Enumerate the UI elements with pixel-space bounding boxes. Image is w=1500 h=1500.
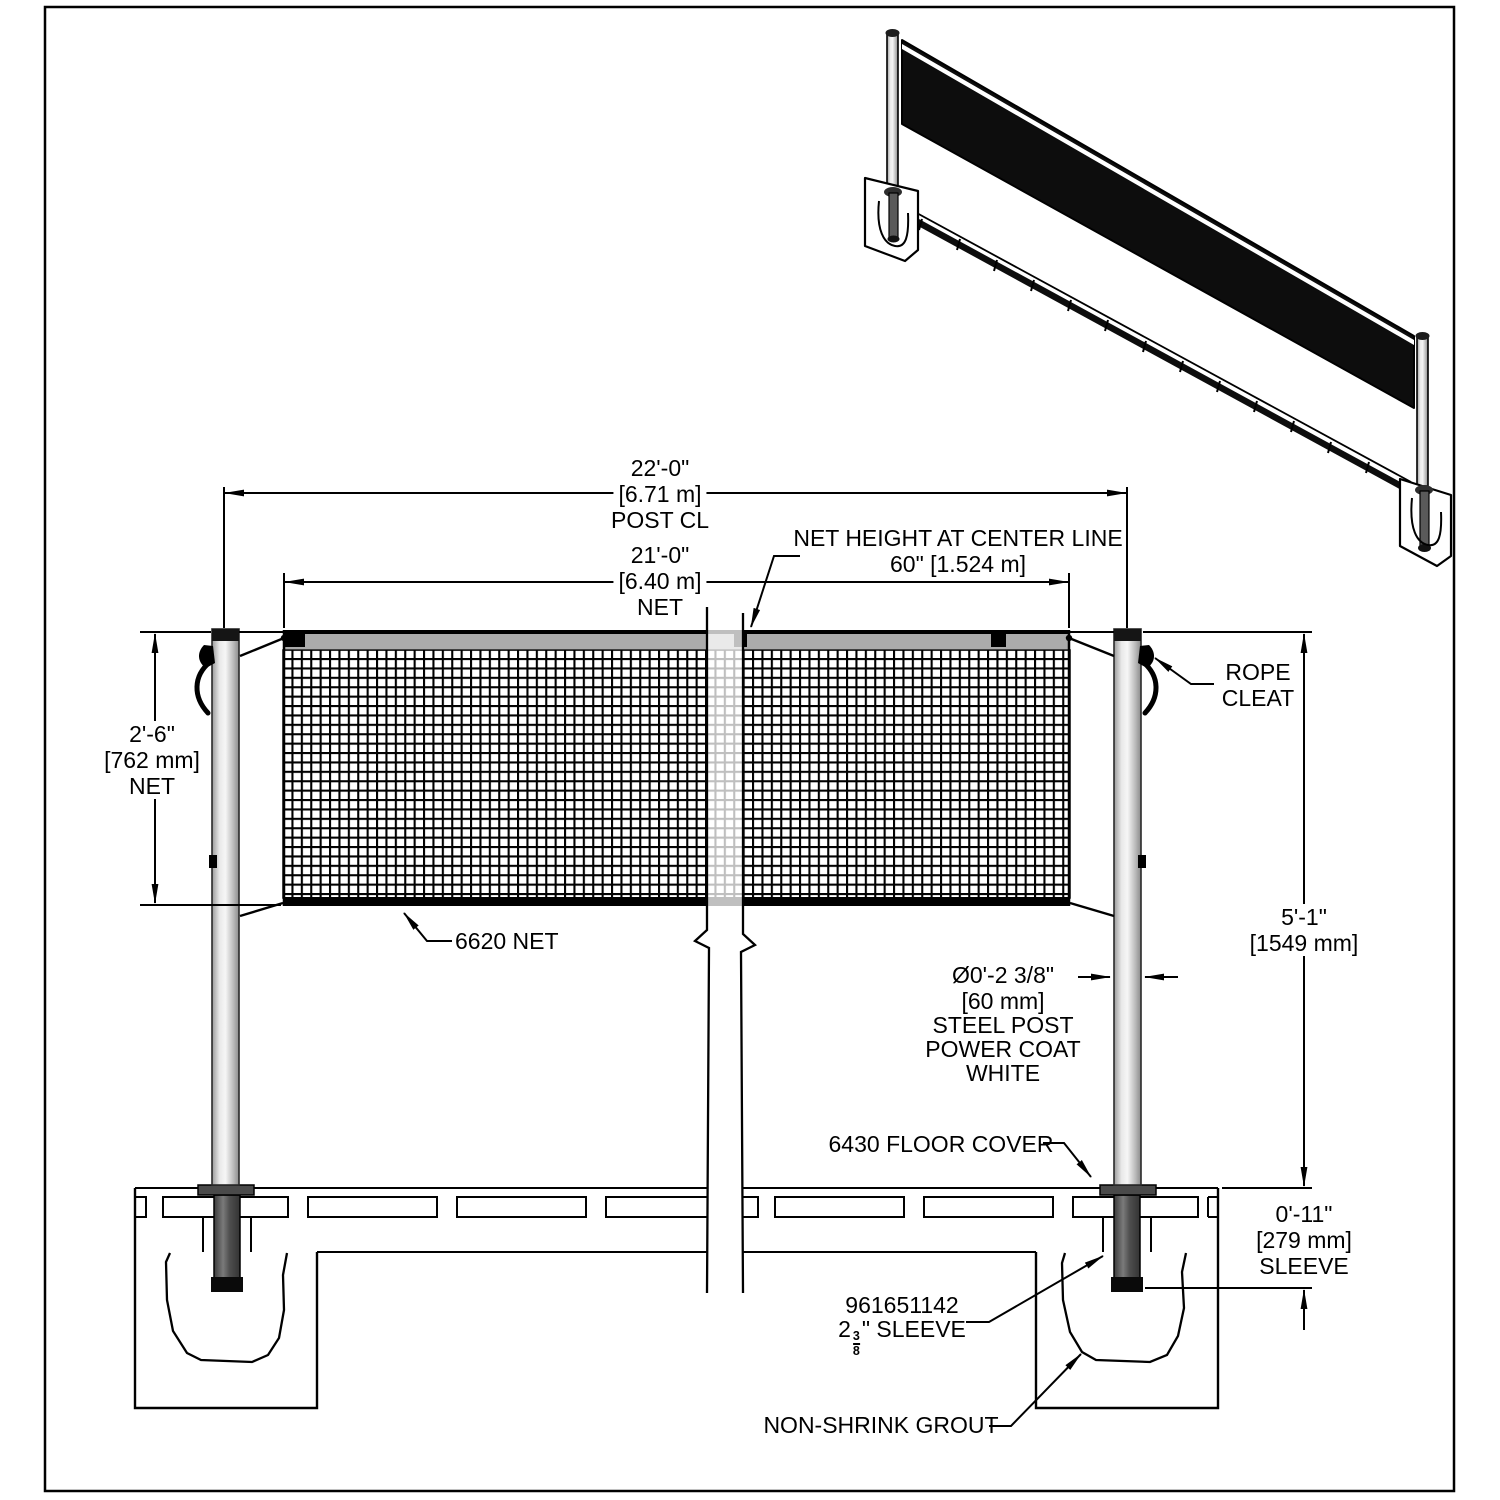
right-post xyxy=(1114,629,1141,1185)
dim-net-width-metric: [6.40 m] xyxy=(613,568,706,594)
net-bottom-edge xyxy=(283,897,1070,906)
fraction-numerator: 3 xyxy=(853,1330,860,1343)
dim-sleeve-metric: [279 mm] xyxy=(1251,1227,1357,1253)
net-tie-patch-left xyxy=(285,631,305,647)
net-height-callout-line2: 60" [1.524 m] xyxy=(890,551,1026,577)
dim-post-cl-imperial: 22'-0" xyxy=(631,455,690,481)
iso-right-post-stub xyxy=(1420,491,1429,547)
post-spec-line3: WHITE xyxy=(966,1060,1040,1086)
dim-post-cl-metric: [6.71 m] xyxy=(613,481,706,507)
dim-sleeve-imperial: 0'-11" xyxy=(1271,1201,1338,1227)
left-sleeve xyxy=(214,1195,240,1278)
post-dia-metric: [60 mm] xyxy=(961,988,1044,1014)
dim-net-depth-label: NET xyxy=(124,773,180,799)
net-mesh xyxy=(283,650,1070,898)
post-spec-line1: STEEL POST xyxy=(932,1012,1073,1038)
dim-sleeve-label: SLEEVE xyxy=(1254,1253,1354,1279)
left-tie-dot xyxy=(281,635,287,641)
leader-net-height xyxy=(751,556,800,627)
dim-net-depth-metric: [762 mm] xyxy=(99,747,205,773)
isometric-view xyxy=(865,29,1451,566)
rope-cleat-label-line1: ROPE xyxy=(1225,659,1290,685)
post-spec-line2: POWER COAT xyxy=(925,1036,1080,1062)
floor-section xyxy=(135,1188,1218,1408)
floor-cover-label: 6430 FLOOR COVER xyxy=(829,1131,1054,1157)
dim-post-height-imperial: 5'-1" xyxy=(1276,904,1332,930)
grout-label: NON-SHRINK GROUT xyxy=(763,1412,998,1438)
fraction-denominator: 8 xyxy=(853,1345,860,1358)
leader-net-part xyxy=(404,913,452,941)
net-part-label: 6620 NET xyxy=(455,928,559,954)
right-tie-dot xyxy=(1066,635,1072,641)
net-headband-tape xyxy=(283,634,1070,649)
net-height-callout-line1: NET HEIGHT AT CENTER LINE xyxy=(793,525,1122,551)
left-rope xyxy=(197,662,210,713)
sleeve-size-fraction: 38 xyxy=(853,1330,860,1358)
iso-left-post-tip xyxy=(888,236,900,243)
right-extension-lines xyxy=(1143,632,1312,1288)
dim-post-height-metric: [1549 mm] xyxy=(1245,930,1364,956)
dim-net-width-label: NET xyxy=(637,594,683,620)
iso-left-post-stub xyxy=(889,193,898,238)
left-post xyxy=(212,629,239,1185)
net-front-view xyxy=(239,630,1114,916)
left-sleeve-cap xyxy=(211,1277,243,1292)
dim-net-width-imperial: 21'-0" xyxy=(631,542,690,568)
right-floor-cover xyxy=(1100,1185,1156,1195)
right-post-cap xyxy=(1114,629,1141,641)
technical-drawing-canvas: 22'-0" [6.71 m] POST CL NET HEIGHT AT CE… xyxy=(0,0,1500,1500)
iso-right-post-cap xyxy=(1416,332,1430,340)
net-top-edge xyxy=(283,630,1070,635)
center-break-band xyxy=(708,606,742,1294)
dim-post-cl-label: POST CL xyxy=(611,507,709,533)
iso-left-post-cap xyxy=(886,29,900,37)
floor-slots xyxy=(135,1197,1218,1217)
post-dia-imperial: Ø0'-2 3/8" xyxy=(952,962,1054,988)
right-rope xyxy=(1143,662,1156,713)
net-tie-patch-right xyxy=(991,631,1006,647)
rope-cleat-label-line2: CLEAT xyxy=(1222,685,1294,711)
dim-net-depth-imperial: 2'-6" xyxy=(124,721,180,747)
iso-right-post xyxy=(1417,336,1428,486)
right-post-tab xyxy=(1138,855,1146,868)
left-post-tab xyxy=(209,855,217,868)
right-sleeve-cap xyxy=(1111,1277,1143,1292)
leader-rope-cleat xyxy=(1155,658,1214,684)
right-sleeve xyxy=(1114,1195,1140,1278)
sleeve-size-label: 238" SLEEVE xyxy=(838,1316,966,1358)
sleeve-size-post: " SLEEVE xyxy=(862,1316,966,1342)
sleeve-size-pre: 2 xyxy=(838,1316,851,1342)
left-floor-cover xyxy=(198,1185,254,1195)
iso-net-top-tape xyxy=(902,44,1414,345)
sleeve-channels xyxy=(203,1217,1151,1252)
left-post-cap xyxy=(212,629,239,641)
sleeve-part-number: 961651142 xyxy=(845,1292,958,1318)
iso-left-post xyxy=(887,33,898,193)
